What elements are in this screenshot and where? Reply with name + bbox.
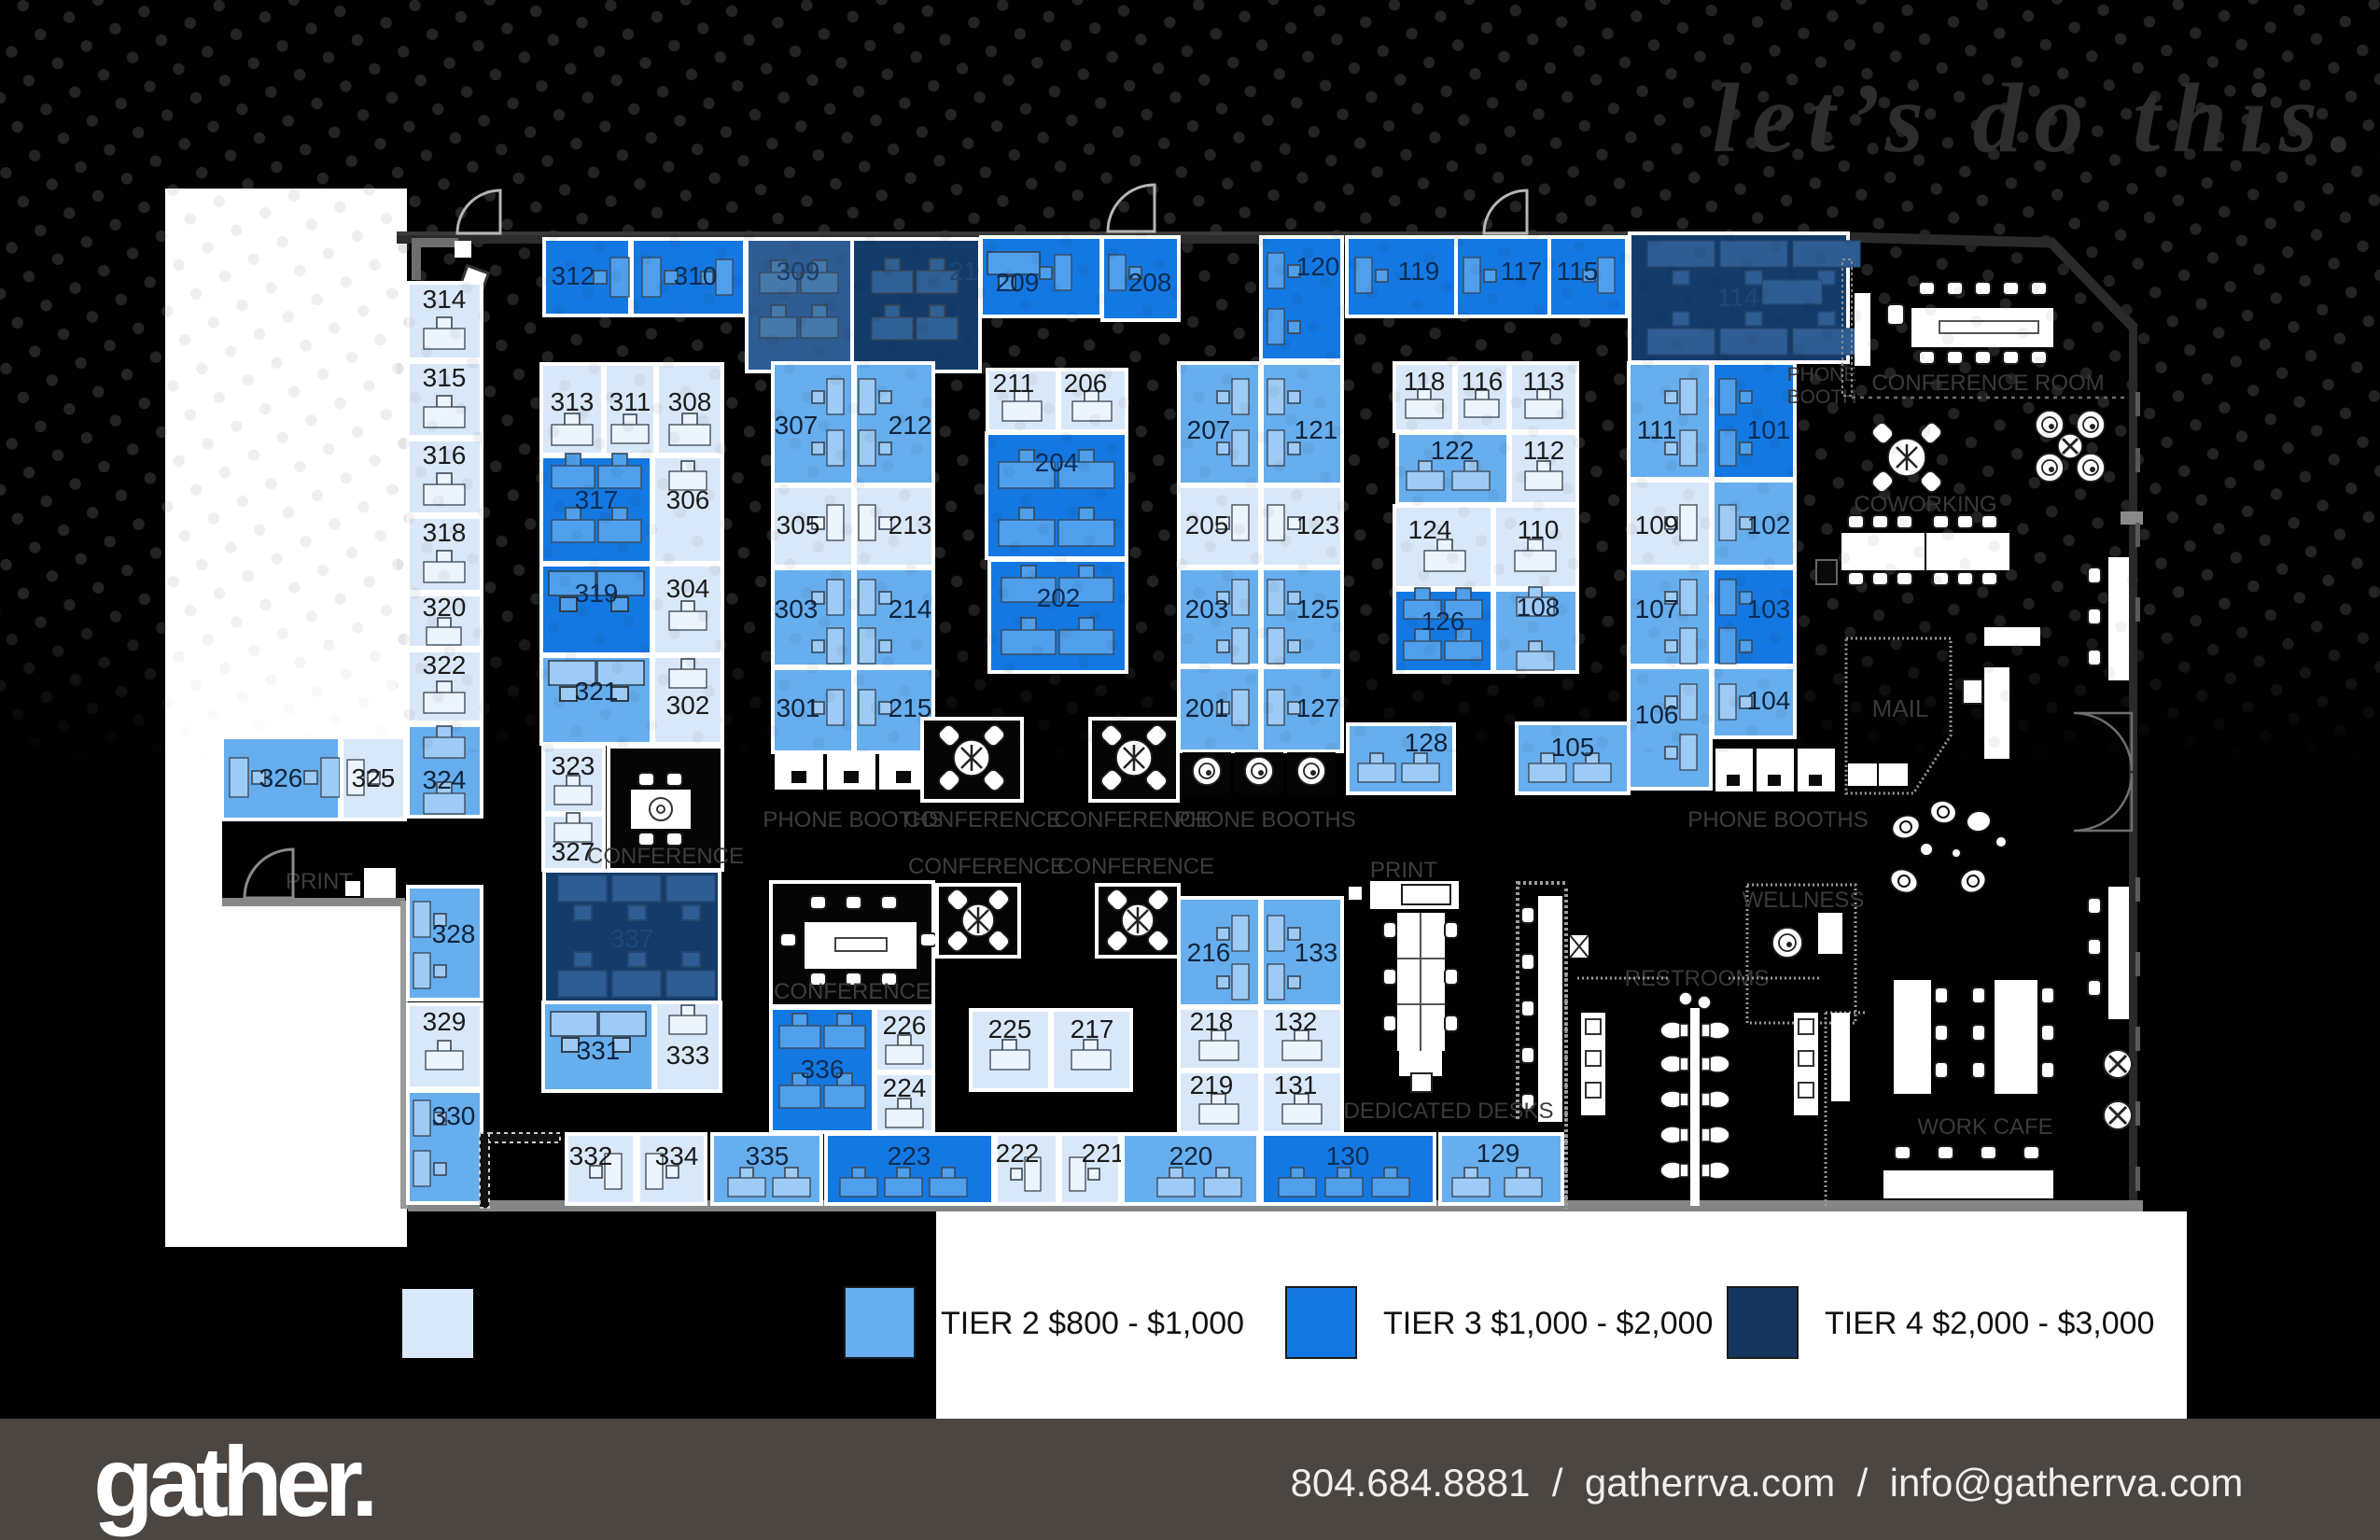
svg-text:804.684.8881 / gatherrva.com: 804.684.8881 / gatherrva.com / info@gath… bbox=[1291, 1461, 2244, 1505]
svg-text:336: 336 bbox=[801, 1055, 845, 1084]
svg-text:225: 225 bbox=[988, 1015, 1032, 1043]
svg-text:CONFERENCE: CONFERENCE bbox=[908, 854, 1065, 879]
svg-text:221: 221 bbox=[1082, 1139, 1126, 1168]
svg-text:WORK CAFE: WORK CAFE bbox=[1917, 1114, 2052, 1140]
svg-text:332: 332 bbox=[569, 1141, 613, 1170]
svg-text:219: 219 bbox=[1190, 1071, 1234, 1099]
svg-text:132: 132 bbox=[1274, 1007, 1318, 1036]
svg-text:133: 133 bbox=[1295, 938, 1338, 967]
svg-text:131: 131 bbox=[1274, 1071, 1318, 1099]
svg-text:337: 337 bbox=[610, 924, 654, 953]
svg-text:TIER 2 $800 - $1,000: TIER 2 $800 - $1,000 bbox=[941, 1306, 1244, 1341]
svg-text:129: 129 bbox=[1477, 1139, 1520, 1168]
svg-text:223: 223 bbox=[888, 1141, 931, 1170]
svg-text:TIER 4 $2,000 - $3,000: TIER 4 $2,000 - $3,000 bbox=[1825, 1306, 2154, 1341]
svg-text:TIER 3 $1,000 - $2,000: TIER 3 $1,000 - $2,000 bbox=[1383, 1306, 1713, 1341]
svg-text:330: 330 bbox=[432, 1101, 476, 1130]
svg-text:gather.: gather. bbox=[93, 1427, 372, 1537]
svg-text:217: 217 bbox=[1071, 1015, 1114, 1043]
svg-text:329: 329 bbox=[423, 1007, 467, 1036]
svg-text:DEDICATED DESKS: DEDICATED DESKS bbox=[1344, 1099, 1554, 1124]
svg-text:PRINT: PRINT bbox=[1370, 858, 1437, 883]
svg-text:PHONE BOOTHS: PHONE BOOTHS bbox=[1687, 807, 1868, 833]
svg-text:CONFERENCE: CONFERENCE bbox=[774, 979, 931, 1004]
svg-text:CONFERENCE: CONFERENCE bbox=[1057, 854, 1214, 879]
svg-text:226: 226 bbox=[883, 1011, 927, 1040]
svg-text:224: 224 bbox=[883, 1073, 927, 1102]
svg-text:334: 334 bbox=[655, 1141, 699, 1170]
svg-text:323: 323 bbox=[552, 751, 595, 780]
svg-text:331: 331 bbox=[577, 1036, 621, 1065]
svg-text:let’s do this.: let’s do this. bbox=[1712, 63, 2366, 173]
svg-text:222: 222 bbox=[996, 1139, 1040, 1168]
svg-text:130: 130 bbox=[1326, 1141, 1370, 1170]
svg-text:220: 220 bbox=[1169, 1141, 1213, 1170]
svg-text:PRINT: PRINT bbox=[286, 869, 353, 894]
svg-text:WELLNESS: WELLNESS bbox=[1743, 888, 1865, 913]
svg-text:333: 333 bbox=[666, 1041, 710, 1070]
svg-text:326: 326 bbox=[259, 763, 303, 792]
svg-text:216: 216 bbox=[1187, 938, 1231, 967]
svg-text:218: 218 bbox=[1190, 1007, 1234, 1036]
svg-text:328: 328 bbox=[432, 919, 476, 948]
svg-text:CONFERENCE: CONFERENCE bbox=[904, 807, 1061, 833]
svg-text:335: 335 bbox=[746, 1141, 790, 1170]
svg-text:PHONE BOOTHS: PHONE BOOTHS bbox=[1175, 807, 1355, 833]
svg-text:CONFERENCE: CONFERENCE bbox=[587, 844, 744, 869]
svg-text:325: 325 bbox=[352, 763, 396, 792]
svg-text:324: 324 bbox=[423, 765, 467, 794]
